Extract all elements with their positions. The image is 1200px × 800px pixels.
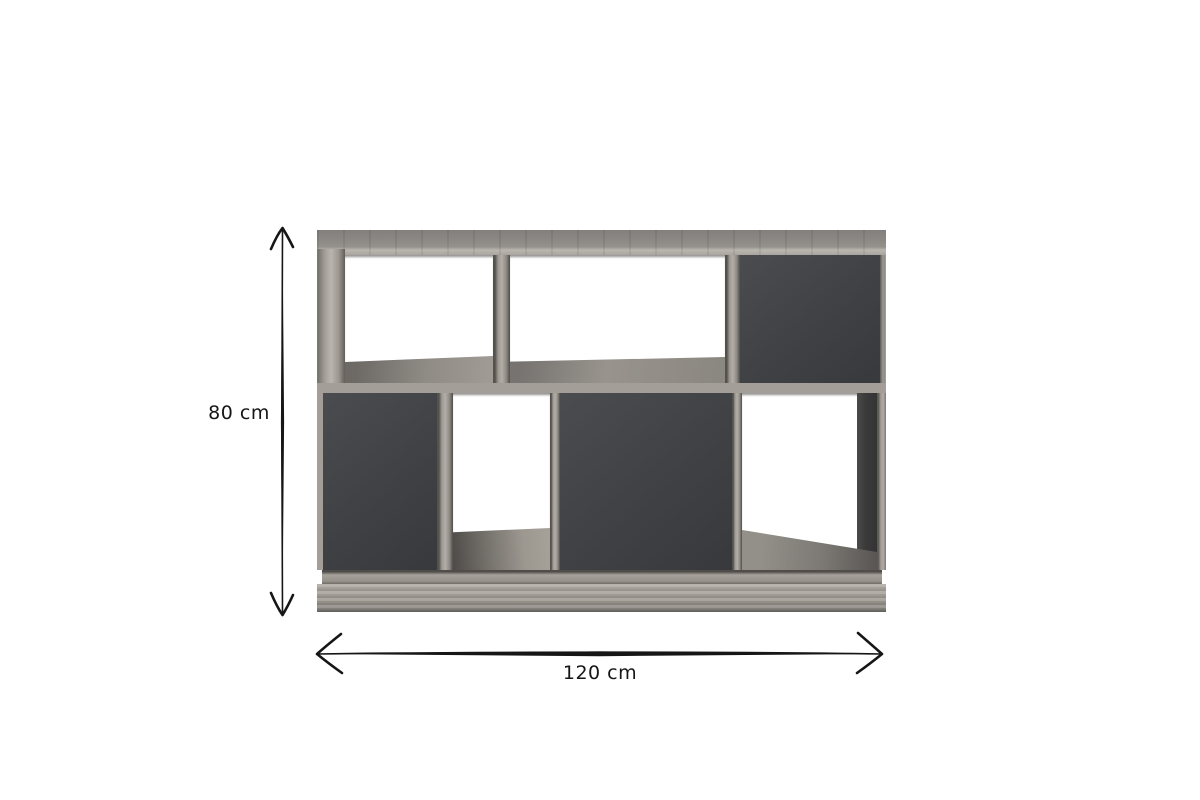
compartment-side-shadow <box>857 393 877 570</box>
bottom-row-divider-2 <box>550 393 560 570</box>
shelf-right-side-panel <box>877 393 886 570</box>
bottom-row-left-door <box>323 393 437 570</box>
compartment-floor <box>510 357 725 383</box>
plinth-recess <box>322 570 882 584</box>
height-dimension-label: 80 cm <box>208 402 270 424</box>
plinth-base <box>317 584 886 612</box>
top-row-right-door <box>740 255 880 383</box>
top-row-divider-2 <box>725 255 740 383</box>
shelf-right-edge-top <box>880 255 885 383</box>
shelf-left-side-panel <box>317 249 345 383</box>
product-dimension-diagram: 80 cm 120 cm <box>0 0 1200 800</box>
bottom-row-open-compartment-left <box>453 393 550 570</box>
compartment-floor <box>453 528 550 570</box>
top-row-open-compartment-2 <box>510 255 725 383</box>
width-dimension-label: 120 cm <box>556 662 644 684</box>
top-row-open-compartment-1 <box>345 255 493 383</box>
compartment-floor <box>345 356 493 383</box>
bottom-row-divider-1 <box>437 393 453 570</box>
bottom-row-open-compartment-right <box>742 393 877 570</box>
bottom-row-center-door <box>560 393 732 570</box>
top-row-divider-1 <box>493 255 510 383</box>
bottom-row-divider-3 <box>732 393 742 570</box>
shelf-top-panel <box>317 230 886 255</box>
